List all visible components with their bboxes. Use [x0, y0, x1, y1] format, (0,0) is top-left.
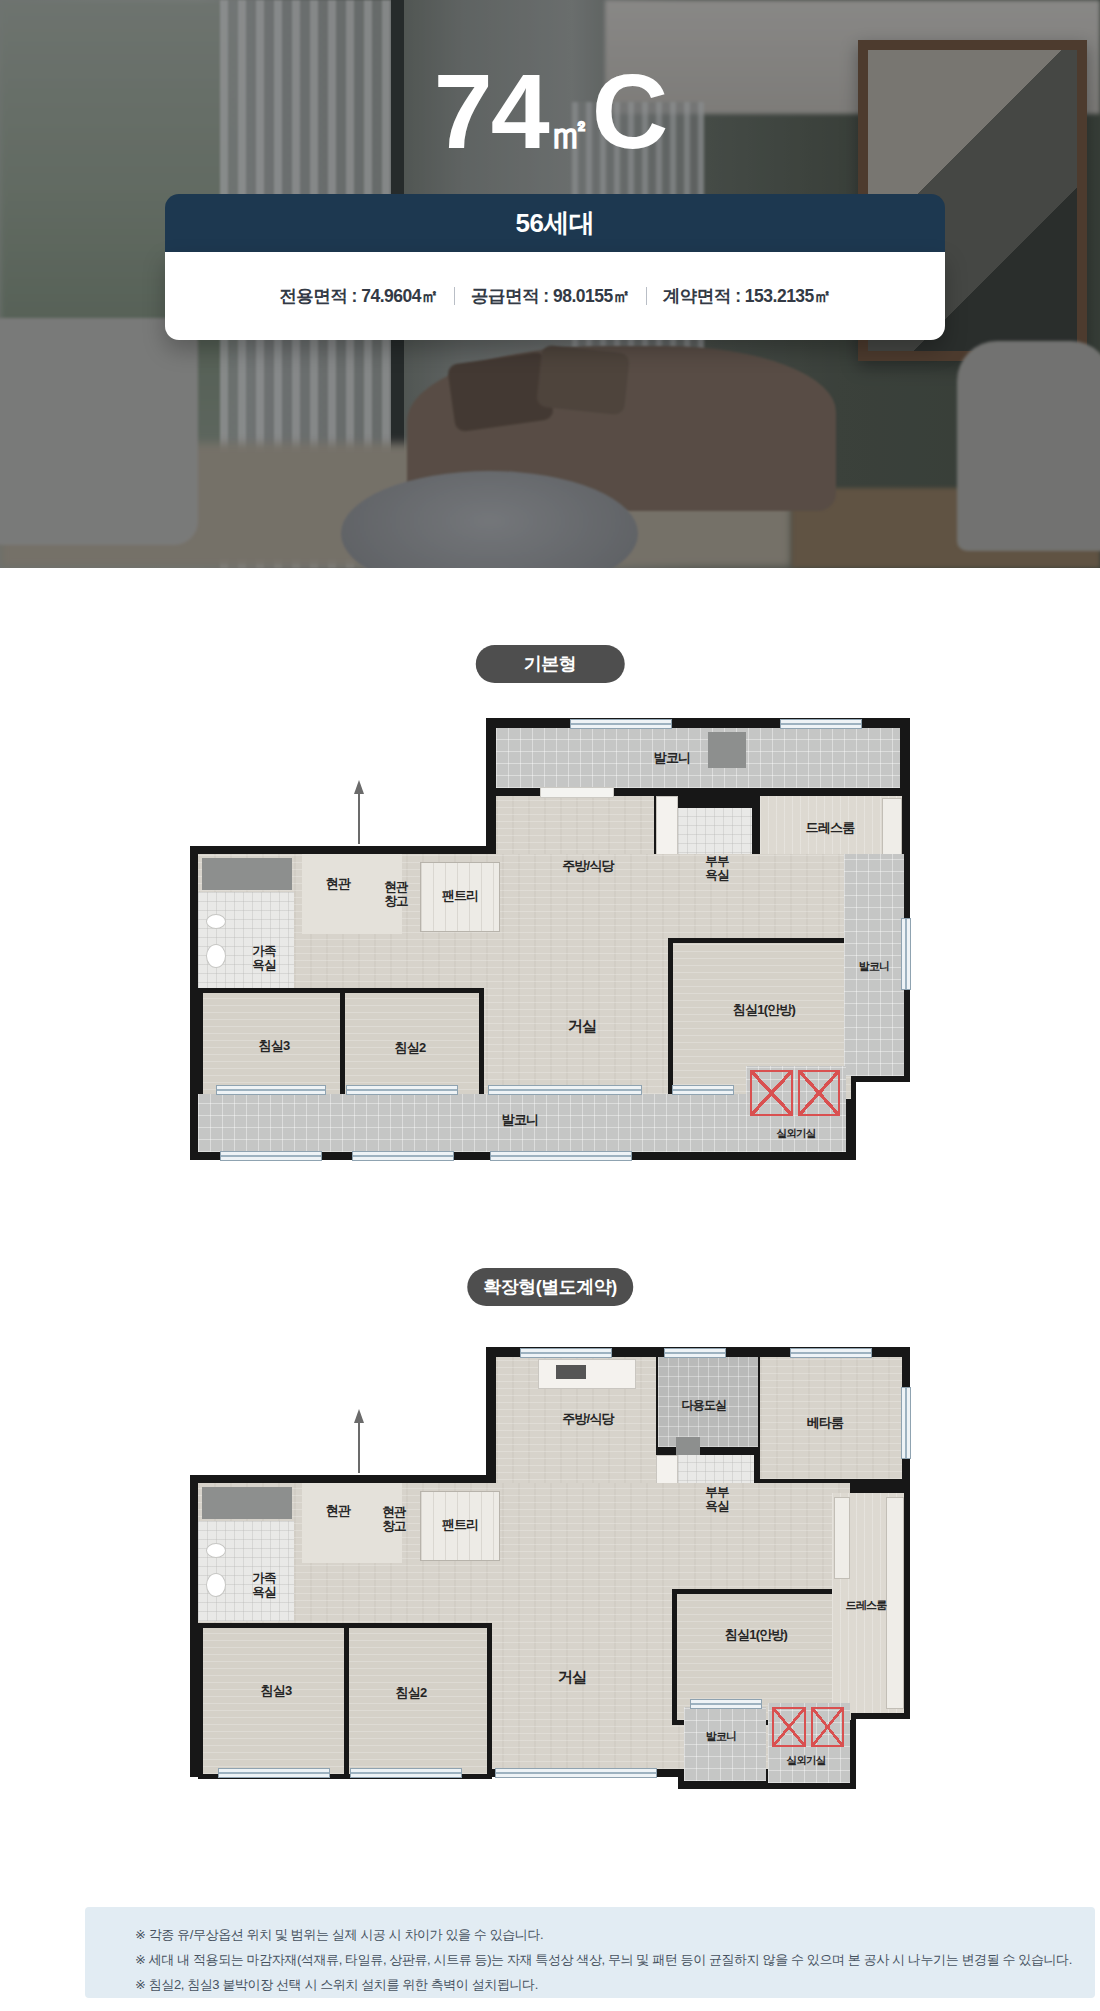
label-dress-room: 드레스룸: [806, 819, 855, 837]
window: [220, 1151, 322, 1161]
label-utility: 다용도실: [682, 1397, 727, 1414]
ac-unit-marks: [772, 1707, 844, 1747]
toilet: [206, 944, 226, 968]
room-family-bath: [198, 892, 294, 992]
room-balcony: [684, 1707, 766, 1781]
window: [346, 1085, 458, 1095]
area-line: 전용면적 : 74.9604㎡ 공급면적 : 98.0155㎡ 계약면적 : 1…: [279, 284, 831, 308]
area-supply: 공급면적 : 98.0155㎡: [471, 284, 630, 308]
ac-unit-marks: [750, 1070, 840, 1116]
window: [690, 1699, 762, 1709]
label-kitchen: 주방/식당: [562, 857, 614, 875]
label-bedroom3: 침실3: [261, 1682, 292, 1700]
balcony-door: [540, 787, 614, 798]
footer-note: ※ 세대 내 적용되는 마감자재(석재류, 타일류, 상판류, 시트류 등)는 …: [135, 1947, 1095, 1972]
window: [790, 1348, 872, 1358]
label-balcony-bottom: 발코니: [502, 1111, 539, 1129]
ac-x-mark: [772, 1707, 806, 1747]
extended-type-badge: 확장형(별도계약): [467, 1268, 633, 1306]
footer-note: ※ 침실2, 침실3 붙박이장 선택 시 스위치 설치를 위한 측벽이 설치됩니…: [135, 1972, 1095, 1997]
divider: [646, 287, 647, 305]
sink: [206, 1543, 226, 1558]
room-bedroom3: [198, 1623, 354, 1779]
floor-plan-basic: 발코니 드레스룸 주방/식당 부부욕실 현관 현관창고 팬트리 가족욕실 발코니…: [190, 718, 914, 1160]
label-entrance-storage: 현관창고: [379, 880, 413, 909]
stove: [556, 1365, 586, 1379]
sink: [206, 914, 226, 929]
area-contract: 계약면적 : 153.2135㎡: [663, 284, 831, 308]
label-pantry: 팬트리: [442, 887, 479, 905]
window: [352, 1151, 454, 1161]
area-exclusive: 전용면적 : 74.9604㎡: [279, 284, 438, 308]
label-family-bath: 가족욕실: [247, 1571, 281, 1600]
hero-title: 74㎡C: [0, 58, 1100, 164]
window: [570, 719, 672, 729]
window: [901, 1387, 911, 1459]
window: [488, 1085, 642, 1095]
label-family-bath: 가족욕실: [247, 944, 281, 973]
label-entrance: 현관: [326, 1502, 350, 1520]
label-pantry: 팬트리: [442, 1516, 479, 1534]
room-balcony-top: [496, 728, 900, 788]
ac-x-mark: [811, 1707, 845, 1747]
label-beta-room: 베타룸: [807, 1414, 844, 1432]
title-number: 74: [434, 52, 548, 170]
ac-x-mark: [798, 1070, 841, 1116]
hero-photo: 74㎡C 56세대 전용면적 : 74.9604㎡ 공급면적 : 98.0155…: [0, 0, 1100, 568]
window: [780, 719, 862, 729]
room-balcony-bottom: [198, 1094, 764, 1152]
label-master-bath: 부부욕실: [700, 1485, 734, 1514]
label-living-room: 거실: [568, 1017, 596, 1036]
toilet: [206, 1573, 226, 1597]
label-dress-room: 드레스룸: [846, 1598, 887, 1613]
label-entrance-storage: 현관창고: [377, 1505, 411, 1534]
window: [216, 1085, 326, 1095]
footer-note: ※ 각종 유/무상옵션 위치 및 범위는 실제 시공 시 차이가 있을 수 있습…: [135, 1922, 1095, 1947]
floor-plan-extended: 주방/식당 다용도실 베타룸 부부욕실 현관 현관창고 팬트리 가족욕실 침실3…: [190, 1347, 914, 1789]
closet: [882, 798, 902, 860]
window: [495, 1768, 657, 1778]
ac-x-mark: [750, 1070, 793, 1116]
shaft: [202, 858, 292, 890]
closet: [886, 1497, 904, 1709]
title-type-letter: C: [592, 52, 667, 170]
label-bedroom2: 침실2: [396, 1684, 427, 1702]
floor-plan-page: 74㎡C 56세대 전용면적 : 74.9604㎡ 공급면적 : 98.0155…: [0, 0, 1100, 2011]
window: [350, 1768, 462, 1778]
divider: [454, 287, 455, 305]
label-master-bath: 부부욕실: [700, 854, 734, 883]
title-unit: ㎡: [548, 108, 592, 157]
footer-notes-box: ※ 각종 유/무상옵션 위치 및 범위는 실제 시공 시 차이가 있을 수 있습…: [85, 1907, 1095, 1998]
label-balcony-top: 발코니: [654, 749, 691, 767]
window: [490, 1151, 632, 1161]
label-bedroom1: 침실1(안방): [725, 1626, 787, 1644]
window: [672, 1085, 734, 1095]
window: [218, 1768, 330, 1778]
label-entrance: 현관: [326, 875, 350, 893]
label-balcony: 발코니: [706, 1729, 737, 1744]
label-bedroom3: 침실3: [259, 1037, 290, 1055]
label-living-room: 거실: [558, 1668, 586, 1687]
closet: [834, 1497, 850, 1579]
label-kitchen: 주방/식당: [562, 1410, 614, 1428]
label-ac-unit-room: 실외기실: [787, 1754, 826, 1768]
shaft: [202, 1487, 292, 1519]
area-info-card: 전용면적 : 74.9604㎡ 공급면적 : 98.0155㎡ 계약면적 : 1…: [165, 252, 945, 340]
window: [664, 1348, 726, 1358]
basic-type-badge: 기본형: [476, 645, 625, 683]
label-bedroom2: 침실2: [395, 1039, 426, 1057]
label-ac-unit-room: 실외기실: [777, 1127, 816, 1141]
window: [901, 918, 911, 990]
window: [520, 1348, 612, 1358]
north-arrow-icon: [352, 780, 366, 844]
shaft: [708, 732, 746, 768]
kitchen-counter: [538, 1359, 636, 1389]
north-arrow-icon: [352, 1409, 366, 1473]
label-balcony-right: 발코니: [859, 959, 890, 974]
units-badge: 56세대: [165, 194, 945, 252]
label-bedroom1: 침실1(안방): [733, 1001, 795, 1019]
